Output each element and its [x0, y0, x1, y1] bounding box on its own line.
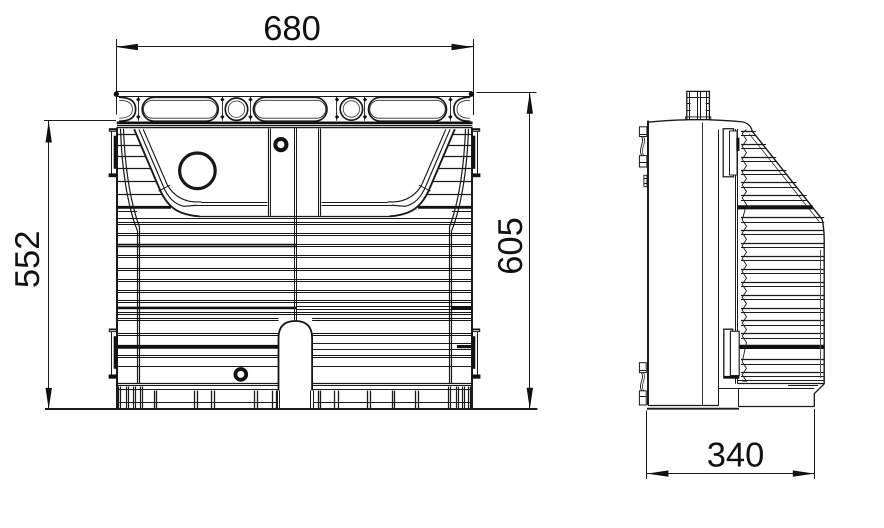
svg-text:552: 552	[9, 231, 47, 289]
svg-text:340: 340	[707, 436, 765, 474]
svg-text:605: 605	[492, 217, 530, 275]
svg-text:680: 680	[263, 10, 321, 48]
